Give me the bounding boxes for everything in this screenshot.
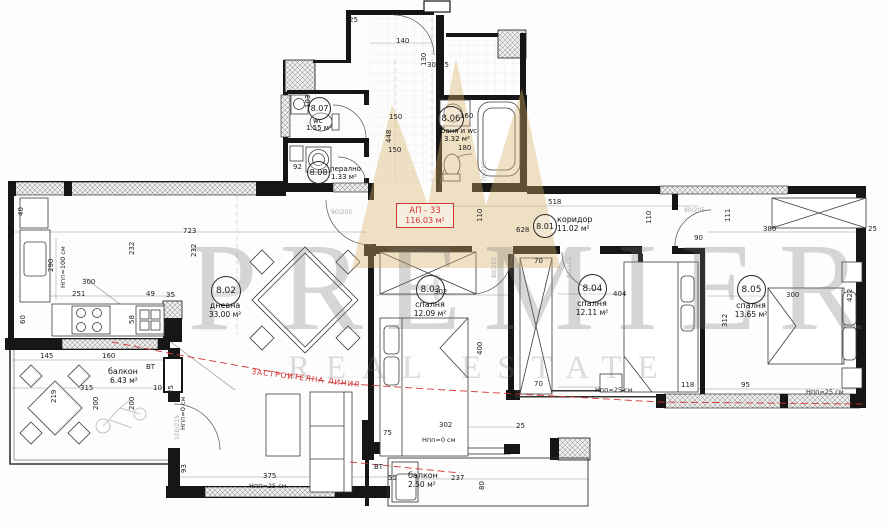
room-name-8-03: спалня	[403, 300, 457, 309]
vt-label-1: ВТ	[146, 364, 155, 371]
dim: 237	[451, 475, 464, 482]
bed-8-05	[768, 288, 856, 364]
dim: 251	[72, 291, 85, 298]
dim: 145	[40, 353, 53, 360]
dim: 35	[166, 292, 175, 299]
dim: 160	[102, 353, 115, 360]
balcony-table	[20, 365, 90, 444]
dim: 25	[516, 423, 525, 430]
room-name-8-08: перално	[330, 165, 361, 173]
door-label-living: 90/205	[331, 210, 352, 216]
room-area-8-07: 1.55 м²	[306, 124, 332, 132]
dim: 200	[129, 397, 136, 410]
plan-drawing	[0, 0, 885, 528]
dim: 422	[847, 289, 854, 302]
dim: 518	[548, 199, 561, 206]
nightstand-8-05-a	[842, 262, 862, 282]
nightstand-8-05-b	[842, 368, 862, 388]
dim: 315	[80, 385, 93, 392]
dining-table	[250, 247, 360, 353]
dim: 70	[534, 381, 543, 388]
dim: 58	[129, 315, 136, 324]
dim: 232	[191, 244, 198, 257]
dim: 380	[763, 226, 776, 233]
dim: 118	[681, 382, 694, 389]
dim: 75	[383, 430, 392, 437]
room-name-8-02: дневна	[195, 301, 255, 310]
dim: 111	[725, 209, 732, 222]
room-area-8-08: 1.33 м²	[331, 173, 357, 181]
dim: 55	[388, 475, 397, 482]
dim: 80	[479, 481, 486, 490]
dim: 628	[516, 227, 529, 234]
bed-8-04	[624, 262, 698, 392]
door-label-8-04: 80/205	[567, 257, 573, 278]
floor-plan: PREMIER REAL ESTATE АП - 33 116.03 м² 8.…	[0, 0, 885, 528]
npp25-label-1: Нпп=25 см	[249, 483, 287, 490]
apartment-tag: АП - 33 116.03 м²	[396, 203, 454, 228]
dim: 448	[386, 130, 393, 143]
dim: 400	[477, 342, 484, 355]
dim: 90	[694, 235, 703, 242]
door-label-8-05: 80/205	[684, 208, 705, 214]
room-area-8-03: 12.09 м²	[403, 309, 457, 318]
dim: 110	[646, 211, 653, 224]
dim: 95	[741, 382, 750, 389]
kitchen	[20, 198, 164, 336]
room-name-8-04: спалня	[565, 299, 619, 308]
dim: 10	[153, 385, 162, 392]
room-area-8-04: 12.11 м²	[565, 308, 619, 317]
room-area-8-01: 11.02 м²	[557, 224, 590, 233]
dim: 25	[868, 226, 877, 233]
dim: 300	[786, 292, 799, 299]
dim: 25	[440, 62, 449, 69]
vt-label-2: ВТ	[374, 464, 383, 471]
wardrobe-8-04	[520, 258, 552, 394]
dim: 25	[349, 17, 358, 24]
apartment-area: 116.03 м²	[398, 216, 452, 225]
dim: 40	[18, 207, 25, 216]
apartment-number: АП - 33	[398, 206, 452, 216]
dim: 200	[93, 397, 100, 410]
dim: 70	[534, 258, 543, 265]
dim: 110	[477, 209, 484, 222]
balcony1-area: 6.43 м²	[110, 376, 138, 385]
room-circle-8-08: 8.08	[307, 161, 330, 184]
dim: 232	[129, 242, 136, 255]
door-label-balcony: 100/215	[175, 415, 181, 440]
dim: 150	[388, 147, 401, 154]
dim: 302	[434, 289, 447, 296]
dim: 723	[183, 228, 196, 235]
room-area-8-05: 13.65 м²	[724, 310, 778, 319]
door-label-8-03: 80/205	[492, 257, 498, 278]
npp0-label-1: Нпп=0 см	[422, 437, 456, 444]
balcony2-area: 2.50 м²	[408, 480, 436, 489]
dim: 93	[181, 464, 188, 473]
room-area-8-02: 33.00 м²	[195, 310, 255, 319]
dim: 404	[613, 291, 626, 298]
balcony1-name: балкон	[108, 367, 138, 376]
room-name-8-05: спалня	[724, 301, 778, 310]
door-label-8-06: 70/205	[482, 161, 488, 182]
room-circle-8-01: 8.01	[533, 214, 557, 238]
room-name-8-06: баня и wc	[441, 127, 477, 135]
room-circle-8-05: 8.05	[737, 275, 766, 304]
dim: 103	[305, 95, 312, 108]
dim: 219	[51, 390, 58, 403]
npp25-label-3: Нпп=25 см	[806, 389, 844, 396]
dim: 60	[20, 315, 27, 324]
dim: 30	[427, 62, 436, 69]
dim: 92	[293, 164, 302, 171]
dim: 290	[48, 259, 55, 272]
room-name-8-01: коридор	[557, 215, 593, 224]
npp100-label: Нпп=100 см	[60, 246, 67, 288]
npp25-label-2: Нпп=25 см	[595, 387, 633, 394]
dim: 140	[396, 38, 409, 45]
room-area-8-06: 3.32 м²	[444, 135, 470, 143]
dim: 302	[439, 422, 452, 429]
sofa	[310, 392, 352, 492]
balcony-scooter	[96, 400, 146, 433]
dim: 49	[146, 291, 155, 298]
coffee-table	[266, 394, 300, 456]
dim: 150	[389, 114, 402, 121]
dim: 160	[460, 113, 473, 120]
dim: 180	[458, 145, 471, 152]
dim: 375	[263, 473, 276, 480]
balcony2-name: балкон	[408, 471, 438, 480]
dim: 25	[168, 385, 175, 394]
dim: 312	[722, 314, 729, 327]
wardrobe-8-05	[772, 198, 866, 228]
dim: 300	[82, 279, 95, 286]
